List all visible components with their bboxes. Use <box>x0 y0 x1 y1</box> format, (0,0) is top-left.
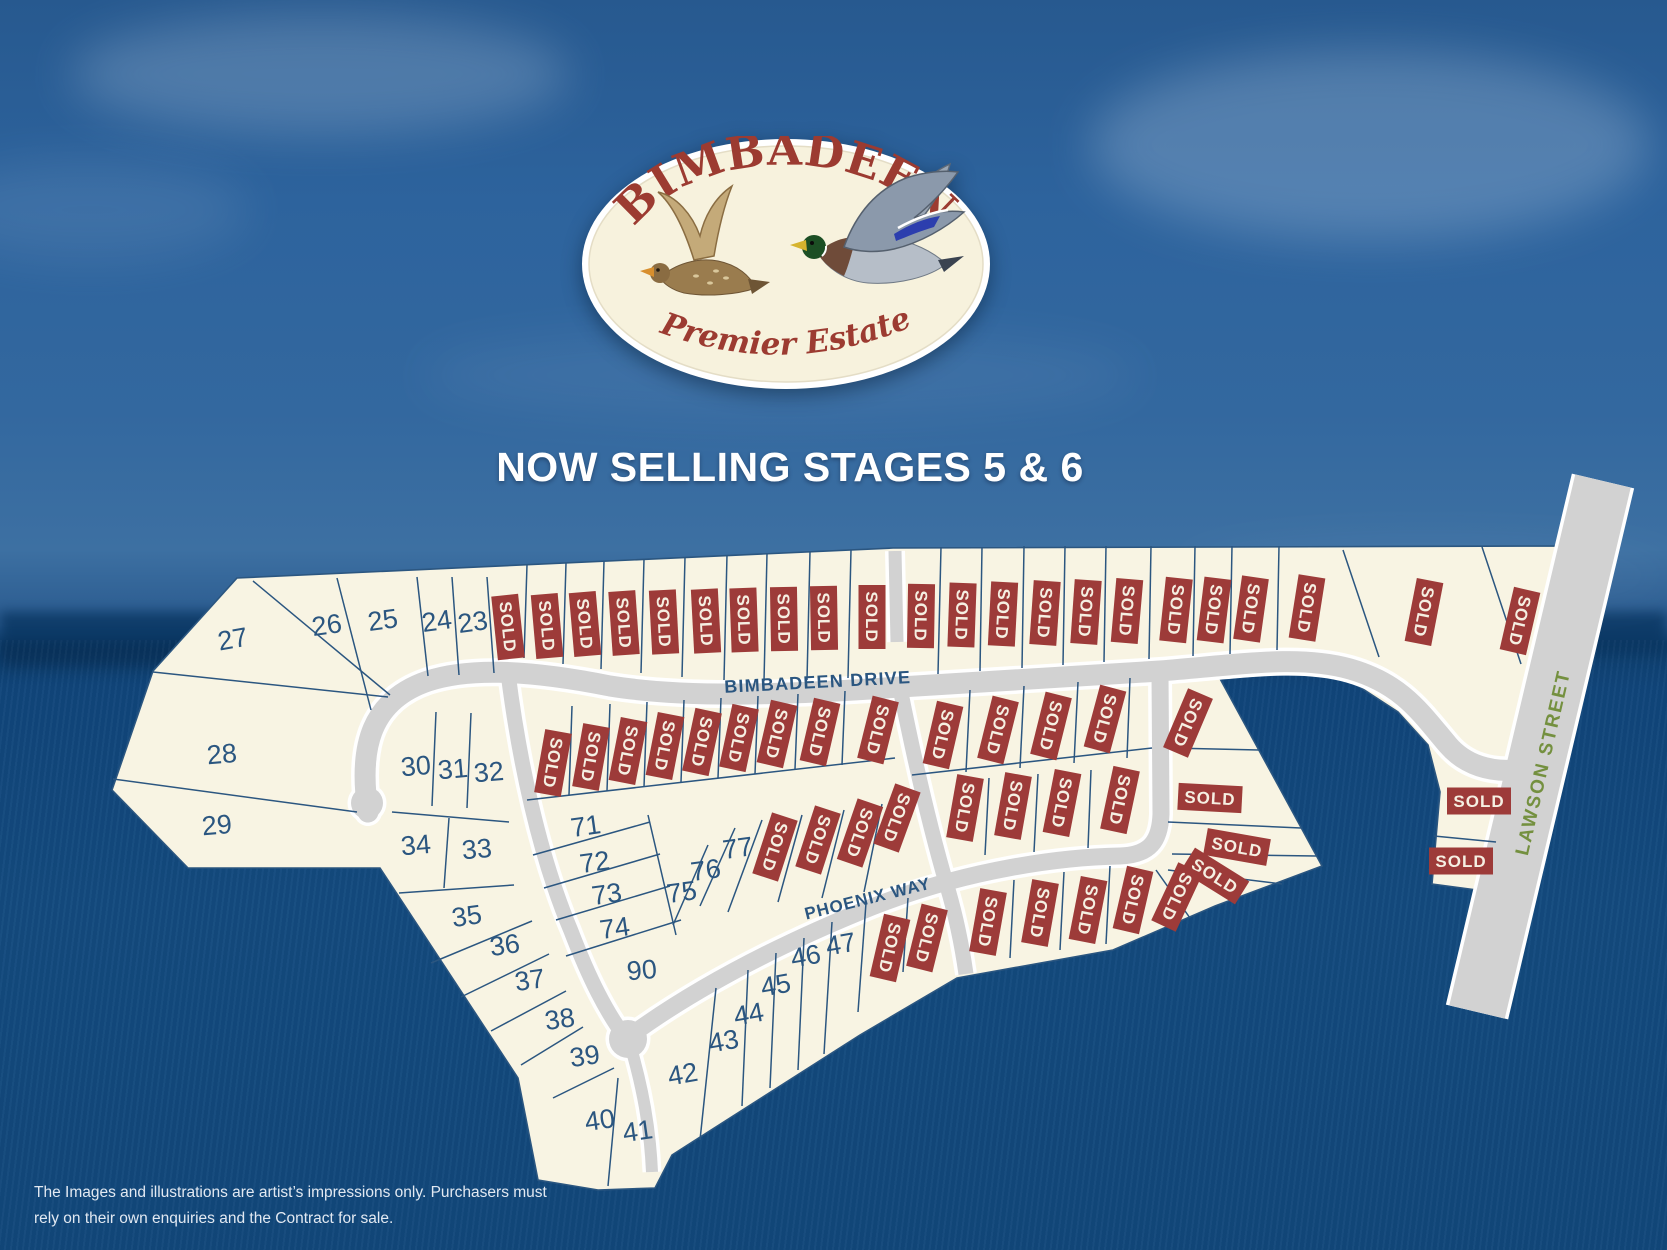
lot-number-90: 90 <box>626 954 659 987</box>
sold-badge-label: SOLD <box>774 593 794 645</box>
lot-number-31: 31 <box>437 753 470 786</box>
sold-badge: SOLD <box>770 587 798 651</box>
disclaimer-line-1: The Images and illustrations are artist’… <box>34 1180 554 1206</box>
lot-number-36: 36 <box>488 928 522 962</box>
lot-number-42: 42 <box>665 1057 700 1092</box>
lot-number-46: 46 <box>788 939 823 974</box>
sold-badge: SOLD <box>1177 783 1242 813</box>
lot-number-32: 32 <box>473 756 506 789</box>
sold-badge-label: SOLD <box>951 589 972 641</box>
lot-number-74: 74 <box>598 911 632 945</box>
sold-badge: SOLD <box>1447 788 1511 815</box>
lot-number-72: 72 <box>578 845 612 879</box>
lot-number-34: 34 <box>400 829 433 862</box>
sold-badge: SOLD <box>649 589 679 654</box>
sold-badge: SOLD <box>1029 580 1060 646</box>
sold-badge: SOLD <box>810 586 838 650</box>
disclaimer-line-2: rely on their own enquiries and the Cont… <box>34 1206 554 1232</box>
lot-number-47: 47 <box>823 927 858 962</box>
estate-logo: BIMBADEEN Premier Estate <box>576 136 996 394</box>
lot-number-76: 76 <box>689 853 723 887</box>
lot-number-23: 23 <box>456 605 490 639</box>
sold-badge-label: SOLD <box>814 592 834 644</box>
lot-number-25: 25 <box>366 603 400 637</box>
lot-number-40: 40 <box>583 1103 617 1137</box>
lot-number-28: 28 <box>206 738 239 771</box>
lot-number-73: 73 <box>590 877 624 911</box>
sold-badge-label: SOLD <box>695 595 717 647</box>
lot-number-27: 27 <box>215 622 250 657</box>
sold-badge: SOLD <box>569 591 601 657</box>
lot-number-35: 35 <box>450 899 484 933</box>
lot-number-38: 38 <box>543 1002 577 1036</box>
lot-number-37: 37 <box>513 963 547 997</box>
sold-badge-label: SOLD <box>911 590 931 642</box>
lot-number-26: 26 <box>310 608 344 642</box>
sold-badge: SOLD <box>947 583 976 648</box>
sold-badge-label: SOLD <box>1074 586 1097 638</box>
sold-badge: SOLD <box>531 593 563 659</box>
lot-number-33: 33 <box>461 833 494 866</box>
junction-bulb <box>609 1020 647 1058</box>
sold-badge-label: SOLD <box>992 588 1014 640</box>
sold-badge: SOLD <box>729 588 758 653</box>
sold-badge-label: SOLD <box>862 591 881 642</box>
lot-number-44: 44 <box>731 997 766 1032</box>
sold-badge: SOLD <box>988 581 1018 646</box>
headline: NOW SELLING STAGES 5 & 6 <box>0 444 1580 491</box>
sold-badge: SOLD <box>859 585 886 649</box>
lot-number-39: 39 <box>568 1039 602 1073</box>
culdesac-bulb <box>351 787 383 819</box>
sold-badge-label: SOLD <box>733 594 754 646</box>
sold-badge-label: SOLD <box>653 596 675 648</box>
sold-badge-label: SOLD <box>1033 587 1056 639</box>
road-stub-top <box>895 551 897 642</box>
disclaimer: The Images and illustrations are artist’… <box>34 1180 554 1231</box>
sold-badge: SOLD <box>1111 578 1143 644</box>
sold-badge: SOLD <box>608 590 639 656</box>
sold-badge-label: SOLD <box>1453 792 1504 811</box>
lot-number-30: 30 <box>400 750 433 783</box>
sold-badge: SOLD <box>907 584 935 648</box>
lot-number-77: 77 <box>721 831 755 865</box>
sold-badge-label: SOLD <box>1435 852 1486 871</box>
sold-badge: SOLD <box>1429 848 1493 875</box>
lot-number-41: 41 <box>621 1114 655 1148</box>
lot-number-29: 29 <box>201 809 234 842</box>
sold-badge: SOLD <box>691 588 721 653</box>
sold-badge-label: SOLD <box>612 597 635 649</box>
lot-number-24: 24 <box>420 604 454 638</box>
sold-badge: SOLD <box>1070 579 1101 645</box>
sold-badge-label: SOLD <box>1184 788 1236 810</box>
lot-number-45: 45 <box>758 968 793 1003</box>
lot-number-71: 71 <box>569 809 603 843</box>
